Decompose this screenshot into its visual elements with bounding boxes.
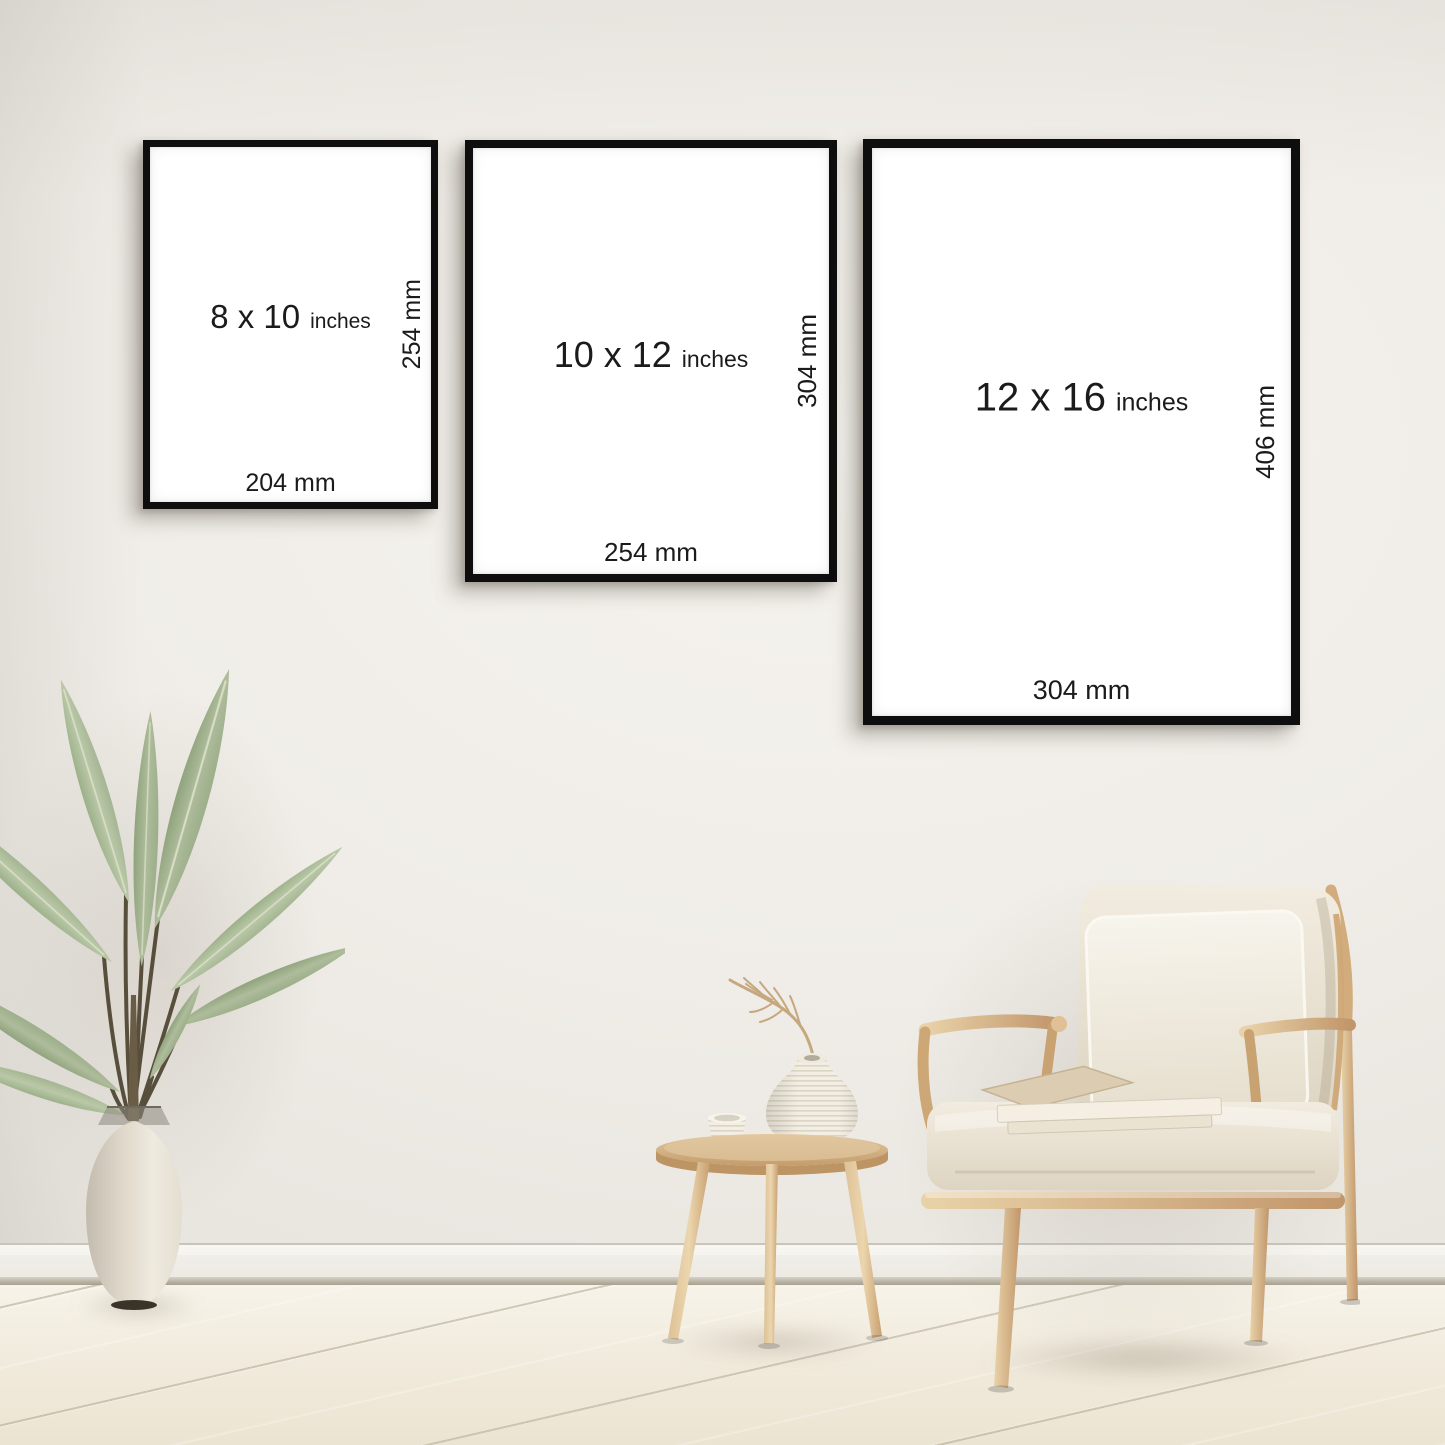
size-unit: inches bbox=[682, 346, 748, 373]
size-value: 10 x 12 bbox=[554, 334, 672, 376]
size-label-row: 10 x 12 inches bbox=[473, 334, 829, 376]
size-value: 12 x 16 bbox=[975, 375, 1106, 420]
height-dimension-label: 254 mm bbox=[398, 279, 427, 369]
height-dimension-wrap: 406 mm bbox=[1250, 148, 1281, 716]
size-label-row: 8 x 10 inches bbox=[150, 298, 431, 336]
height-dimension-wrap: 254 mm bbox=[398, 147, 427, 502]
poster-frame-10x12: 10 x 12 inches 304 mm 254 mm bbox=[465, 140, 837, 582]
dried-branch bbox=[730, 978, 815, 1066]
side-table bbox=[652, 972, 892, 1352]
size-label-row: 12 x 16 inches bbox=[872, 375, 1291, 420]
potted-plant bbox=[0, 655, 345, 1315]
height-dimension-wrap: 304 mm bbox=[792, 148, 823, 574]
seat-rail bbox=[921, 1192, 1345, 1209]
size-value: 8 x 10 bbox=[210, 298, 300, 336]
poster-frame-8x10: 8 x 10 inches 254 mm 204 mm bbox=[143, 140, 438, 509]
height-dimension-label: 406 mm bbox=[1250, 385, 1281, 479]
size-unit: inches bbox=[1116, 388, 1188, 417]
throw-pillow bbox=[1085, 910, 1308, 1121]
ribbed-vase bbox=[766, 1053, 858, 1144]
size-unit: inches bbox=[310, 310, 371, 334]
armchair bbox=[895, 880, 1360, 1400]
width-dimension-label: 204 mm bbox=[150, 469, 431, 498]
table-legs bbox=[662, 1161, 888, 1349]
width-dimension-label: 254 mm bbox=[473, 537, 829, 568]
width-dimension-label: 304 mm bbox=[872, 675, 1291, 706]
height-dimension-label: 304 mm bbox=[792, 314, 823, 408]
poster-frame-12x16: 12 x 16 inches 406 mm 304 mm bbox=[863, 139, 1300, 725]
